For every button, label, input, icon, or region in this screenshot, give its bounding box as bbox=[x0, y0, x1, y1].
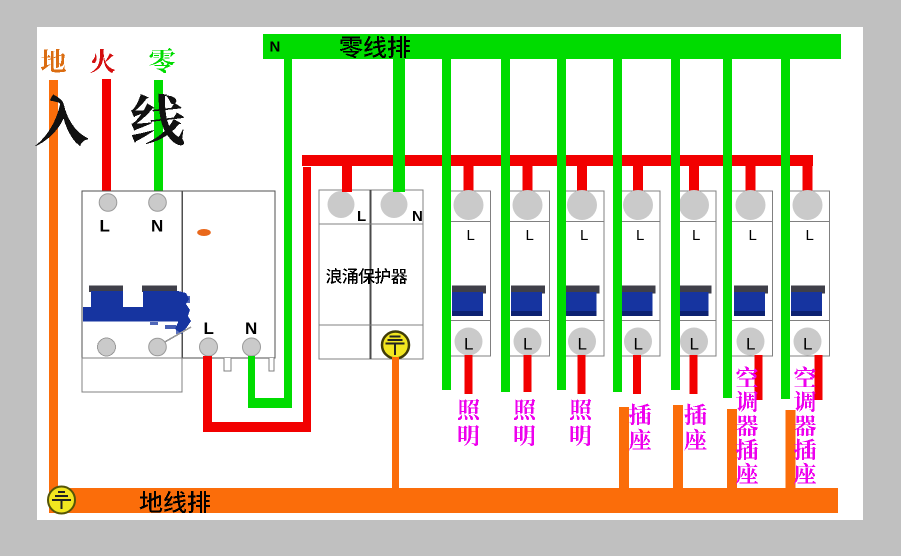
svg-text:L: L bbox=[204, 319, 214, 338]
svg-text:L: L bbox=[803, 335, 812, 354]
svg-text:L: L bbox=[100, 217, 110, 236]
svg-text:L: L bbox=[690, 335, 699, 354]
svg-text:L: L bbox=[464, 335, 473, 354]
svg-text:N: N bbox=[245, 319, 257, 338]
svg-text:L: L bbox=[578, 335, 587, 354]
svg-text:L: L bbox=[357, 208, 366, 225]
svg-text:L: L bbox=[523, 335, 532, 354]
svg-text:N: N bbox=[151, 217, 163, 236]
svg-text:L: L bbox=[692, 227, 700, 244]
svg-text:N: N bbox=[270, 39, 281, 56]
svg-text:L: L bbox=[746, 335, 755, 354]
svg-text:L: L bbox=[749, 227, 757, 244]
svg-text:L: L bbox=[467, 227, 475, 244]
svg-text:L: L bbox=[634, 335, 643, 354]
svg-text:L: L bbox=[636, 227, 644, 244]
svg-text:L: L bbox=[580, 227, 588, 244]
svg-text:N: N bbox=[412, 208, 423, 225]
svg-text:L: L bbox=[526, 227, 534, 244]
svg-text:L: L bbox=[806, 227, 814, 244]
